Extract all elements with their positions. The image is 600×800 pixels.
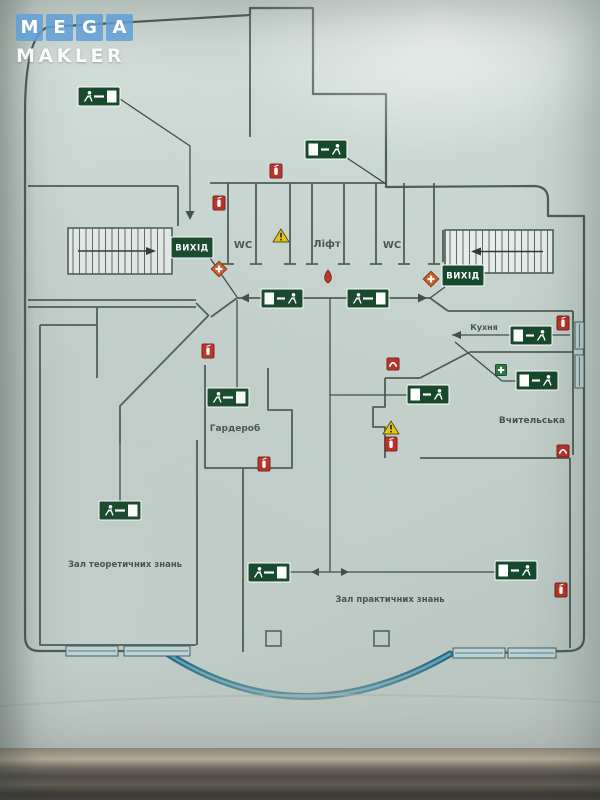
watermark-letter-tile: A: [106, 14, 133, 41]
column: [374, 631, 389, 646]
room-label-wc-right: WC: [383, 240, 401, 251]
poster-bottom-fade: [0, 660, 600, 752]
running-man-icon: [336, 144, 340, 148]
exit-text-sign: ВИХІД: [442, 265, 484, 286]
exit-pictogram-sign: [305, 140, 347, 159]
fire-extinguisher-icon: [270, 164, 282, 178]
exit-text: ВИХІД: [175, 244, 208, 254]
running-man-icon: [88, 91, 92, 95]
running-man-icon: [109, 505, 113, 509]
exit-door-glyph: [265, 293, 275, 305]
exit-door-glyph: [411, 389, 421, 401]
room-label-teachers-room: Вчительська: [499, 416, 565, 426]
watermark-letter-tile: G: [76, 14, 103, 41]
exit-text-sign: ВИХІД: [171, 237, 213, 258]
interior-walls: [28, 16, 573, 652]
column: [266, 631, 281, 646]
watermark-makler-text: MAKLER: [16, 45, 133, 67]
room-label-practice-hall: Зал практичних знань: [335, 595, 444, 605]
fire-extinguisher-icon: [202, 344, 214, 358]
first-aid-diamond-icon: [423, 271, 439, 287]
exit-door-glyph: [520, 375, 530, 387]
exit-pictogram-sign: [495, 561, 537, 580]
room-label-kitchen: Кухня: [470, 323, 498, 332]
window: [575, 322, 584, 349]
running-man-icon: [438, 389, 442, 393]
running-man-icon: [357, 293, 361, 297]
exit-door-glyph: [128, 505, 138, 517]
fire-extinguisher-icon: [385, 437, 397, 451]
running-man-icon: [292, 293, 296, 297]
exit-pictogram-sign: [261, 289, 303, 308]
exit-door-glyph: [514, 330, 524, 342]
exit-door-glyph: [236, 392, 246, 404]
emergency-phone-icon: [387, 358, 399, 370]
window: [508, 648, 556, 658]
fire-extinguisher-icon: [213, 196, 225, 210]
fire-extinguisher-icon: [258, 457, 270, 471]
exit-door-glyph: [499, 565, 509, 577]
first-aid-kit-icon: [496, 365, 507, 376]
exit-door-glyph: [309, 144, 319, 156]
room-label-wc-left: WC: [234, 240, 252, 251]
staircase: [68, 228, 172, 274]
watermark-letter-tile: E: [46, 14, 73, 41]
exit-pictogram-sign: [99, 501, 141, 520]
running-man-icon: [217, 392, 221, 396]
evacuation-routes: [120, 99, 570, 572]
exit-pictogram-sign: [248, 563, 290, 582]
exit-text: ВИХІД: [446, 272, 479, 282]
running-man-icon: [547, 375, 551, 379]
room-label-theory-hall: Зал теоретичних знань: [68, 560, 182, 570]
exit-pictogram-sign: [207, 388, 249, 407]
fire-hydrant-drop-icon: [325, 270, 332, 283]
window: [124, 646, 190, 656]
running-man-icon: [526, 565, 530, 569]
emergency-phone-icon: [557, 445, 569, 457]
exit-door-glyph: [376, 293, 386, 305]
window: [66, 646, 118, 656]
watermark-mega-tiles: MEGA: [16, 14, 133, 41]
watermark-letter-tile: M: [16, 14, 43, 41]
running-man-icon: [258, 567, 262, 571]
exit-pictogram-sign: [407, 385, 449, 404]
window: [453, 648, 505, 658]
exit-door-glyph: [107, 91, 117, 103]
exit-pictogram-sign: [516, 371, 558, 390]
room-label-cloakroom: Гардероб: [210, 423, 261, 434]
hazard-triangle-icon: [273, 229, 289, 242]
exit-door-glyph: [277, 567, 287, 579]
window: [575, 355, 584, 388]
room-label-lift: Ліфт: [313, 238, 341, 250]
table-edge: [0, 748, 600, 800]
watermark: MEGA MAKLER: [16, 14, 133, 67]
exit-pictogram-sign: [510, 326, 552, 345]
exit-pictogram-sign: [347, 289, 389, 308]
fire-extinguisher-icon: [555, 583, 567, 597]
running-man-icon: [541, 330, 545, 334]
evacuation-plan-photo: ВИХІДВИХІДWCЛіфтWCКухняГардеробВчительсь…: [0, 0, 600, 800]
fire-extinguisher-icon: [557, 316, 569, 330]
exit-pictogram-sign: [78, 87, 120, 106]
